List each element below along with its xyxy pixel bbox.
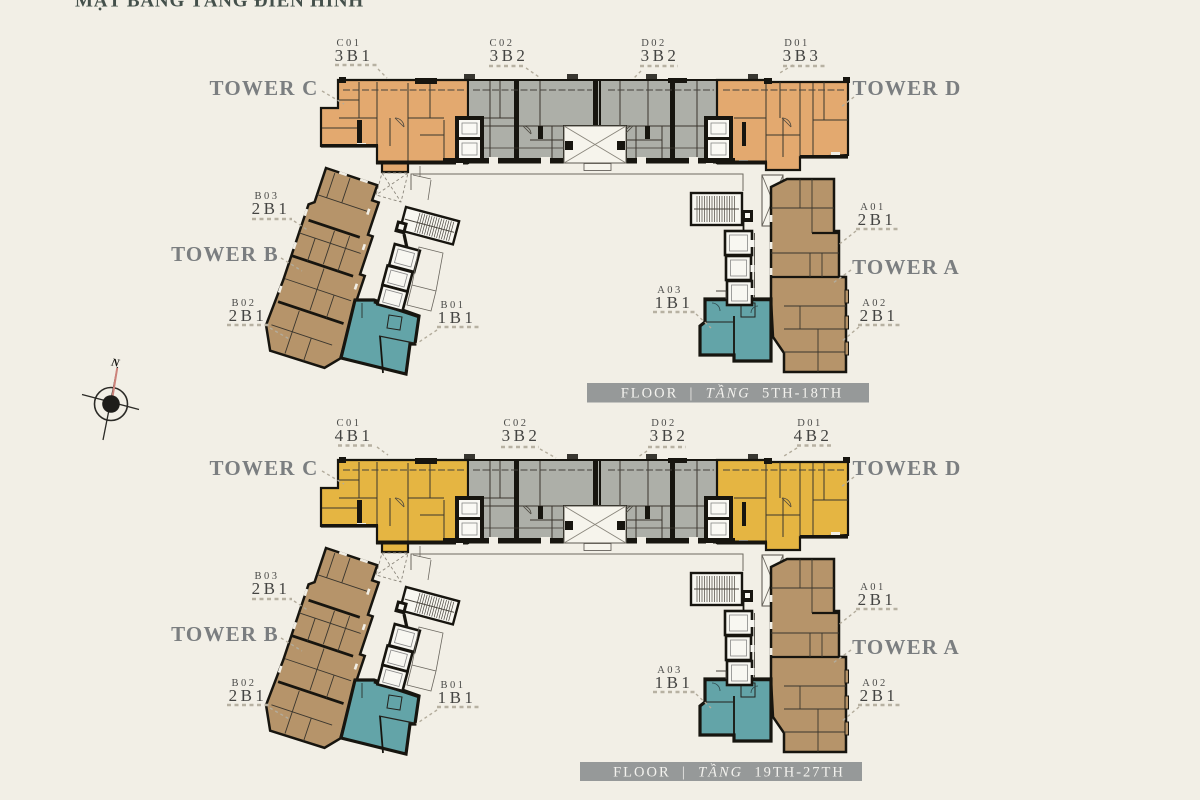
svg-text:2B1: 2B1: [860, 686, 899, 705]
svg-text:1B1: 1B1: [655, 293, 694, 312]
svg-text:3B1: 3B1: [335, 46, 374, 65]
svg-text:1B1: 1B1: [438, 308, 477, 327]
svg-text:3B3: 3B3: [783, 46, 822, 65]
svg-text:TOWER C: TOWER C: [210, 456, 319, 480]
svg-text:3B2: 3B2: [650, 426, 689, 445]
svg-text:3B2: 3B2: [490, 46, 529, 65]
svg-text:2B1: 2B1: [858, 590, 897, 609]
svg-text:1B1: 1B1: [438, 688, 477, 707]
svg-text:2B1: 2B1: [229, 306, 268, 325]
svg-text:TOWER D: TOWER D: [853, 76, 962, 100]
svg-text:2B1: 2B1: [229, 686, 268, 705]
svg-text:3B2: 3B2: [641, 46, 680, 65]
svg-text:TOWER A: TOWER A: [852, 635, 960, 659]
svg-text:1B1: 1B1: [655, 673, 694, 692]
svg-text:TOWER A: TOWER A: [852, 255, 960, 279]
svg-text:3B2: 3B2: [502, 426, 541, 445]
svg-text:2B1: 2B1: [860, 306, 899, 325]
svg-text:2B1: 2B1: [252, 199, 291, 218]
svg-text:2B1: 2B1: [252, 579, 291, 598]
svg-text:FLOOR | TẦNG 19TH-27TH: FLOOR | TẦNG 19TH-27TH: [613, 764, 845, 781]
svg-text:MẶT BẰNG TẦNG ĐIỂN HÌNH: MẶT BẰNG TẦNG ĐIỂN HÌNH: [75, 0, 364, 12]
svg-text:TOWER D: TOWER D: [853, 456, 962, 480]
svg-text:4B1: 4B1: [335, 426, 374, 445]
svg-text:TOWER B: TOWER B: [171, 242, 279, 266]
svg-text:2B1: 2B1: [858, 210, 897, 229]
svg-text:TOWER C: TOWER C: [210, 76, 319, 100]
svg-text:TOWER B: TOWER B: [171, 622, 279, 646]
svg-text:FLOOR | TẦNG 5TH-18TH: FLOOR | TẦNG 5TH-18TH: [621, 385, 844, 402]
svg-text:4B2: 4B2: [794, 426, 833, 445]
